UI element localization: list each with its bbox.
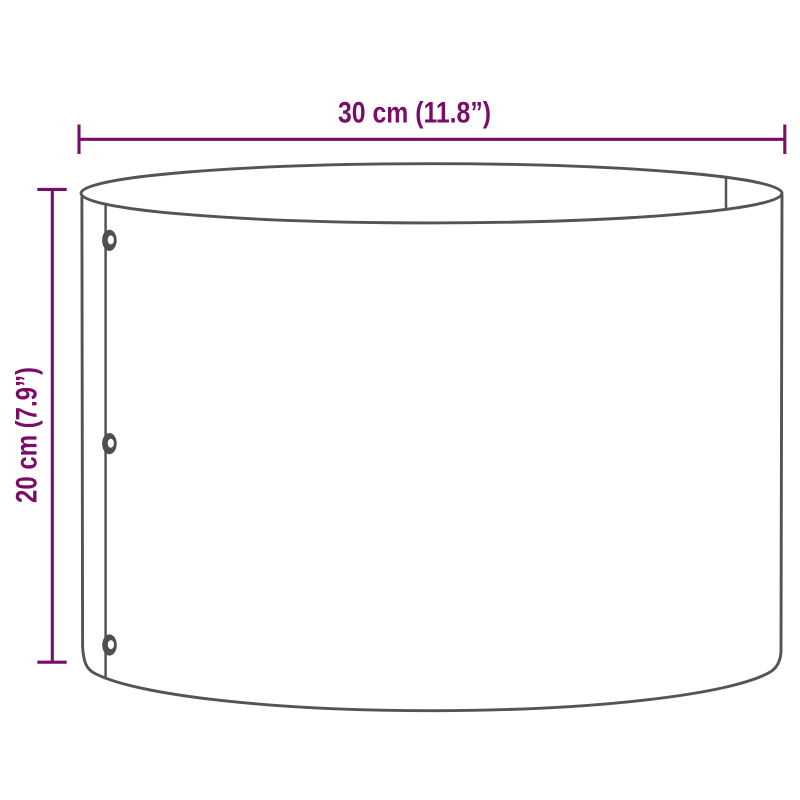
svg-text:30 cm (11.8”): 30 cm (11.8”)	[338, 97, 491, 130]
svg-text:20 cm (7.9”): 20 cm (7.9”)	[11, 367, 44, 503]
